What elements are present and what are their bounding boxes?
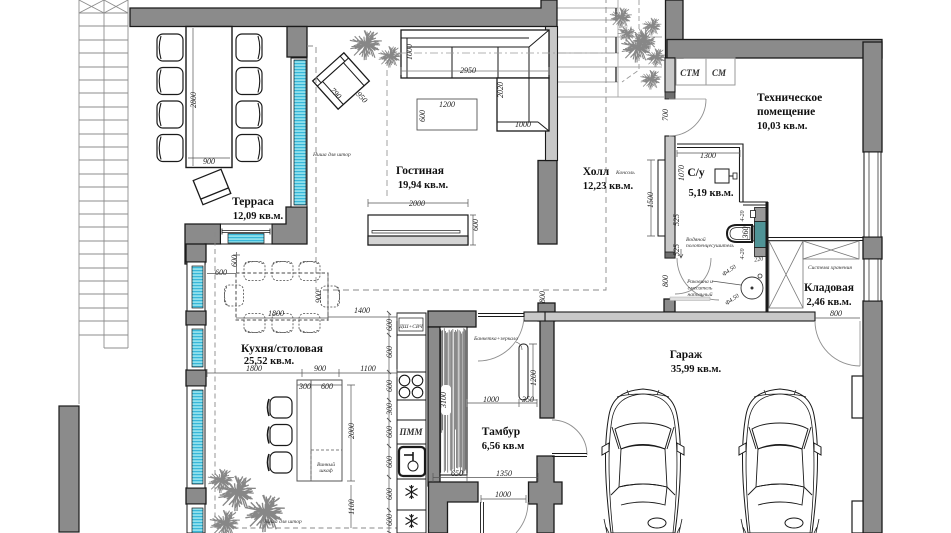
svg-text:600: 600 [321,382,333,391]
svg-text:5,19 кв.м.: 5,19 кв.м. [688,188,733,199]
svg-text:600: 600 [418,110,427,122]
svg-text:напольный: напольный [688,291,713,298]
svg-text:Ниша для штор: Ниша для штор [263,518,302,525]
svg-text:600: 600 [385,380,394,392]
svg-text:Кухня/столовая: Кухня/столовая [241,343,323,355]
svg-text:1070: 1070 [677,165,686,181]
svg-text:Терраса: Терраса [232,196,274,208]
svg-text:220: 220 [754,256,764,263]
svg-text:Консоль: Консоль [615,170,635,176]
svg-text:12,23 кв.м.: 12,23 кв.м. [583,181,634,192]
svg-text:900: 900 [314,364,326,373]
svg-text:Раковина и: Раковина и [686,279,713,285]
svg-text:Банкетка+зеркало: Банкетка+зеркало [473,336,518,342]
svg-text:300: 300 [298,382,311,391]
svg-text:Водяной: Водяной [686,236,706,243]
svg-text:700: 700 [661,109,670,121]
svg-text:600: 600 [385,514,394,526]
svg-text:1400: 1400 [354,306,370,315]
svg-text:2000: 2000 [409,199,425,208]
svg-text:3100: 3100 [439,392,448,409]
svg-text:600: 600 [230,255,239,267]
svg-text:шкаф: шкаф [319,467,332,474]
svg-text:ДШ+СВЧ: ДШ+СВЧ [398,324,424,330]
svg-text:СМ: СМ [712,68,727,78]
svg-text:1350: 1350 [496,469,512,478]
svg-text:800: 800 [538,291,547,303]
svg-text:600: 600 [385,456,394,468]
svg-text:10,03 кв.м.: 10,03 кв.м. [757,121,808,132]
svg-text:19,94 кв.м.: 19,94 кв.м. [398,180,449,191]
svg-text:2000: 2000 [347,423,356,439]
svg-text:600: 600 [215,268,227,277]
svg-text:СТМ: СТМ [680,68,701,78]
svg-text:360: 360 [741,227,750,240]
svg-text:525: 525 [672,214,681,226]
svg-text:Тамбур: Тамбур [482,426,520,438]
svg-text:900: 900 [203,157,215,166]
svg-text:Гостиная: Гостиная [396,165,444,177]
svg-text:4-20: 4-20 [739,211,746,222]
svg-text:900: 900 [314,291,323,303]
svg-text:1100: 1100 [347,499,356,514]
svg-text:1200: 1200 [529,370,538,386]
svg-text:Винный: Винный [317,461,335,468]
svg-text:600: 600 [385,319,394,331]
svg-text:Техническое: Техническое [757,92,822,104]
svg-text:помещение: помещение [757,106,815,118]
svg-text:1000: 1000 [515,120,531,129]
svg-text:600: 600 [385,426,394,438]
svg-text:смеситель: смеситель [688,286,713,292]
svg-text:Система хранения: Система хранения [808,265,852,271]
svg-text:полотенцесушитель: полотенцесушитель [686,243,734,249]
svg-text:600: 600 [385,346,394,358]
svg-text:2020: 2020 [496,82,505,98]
svg-text:4-20: 4-20 [739,249,746,260]
svg-text:800: 800 [830,309,842,318]
svg-text:2950: 2950 [460,66,476,75]
svg-text:1500: 1500 [646,192,655,208]
svg-text:Гараж: Гараж [670,349,703,361]
svg-text:Кладовая: Кладовая [804,282,854,294]
svg-text:2,46 кв.м.: 2,46 кв.м. [806,297,851,308]
svg-text:С/у: С/у [687,167,705,179]
svg-text:525: 525 [672,244,681,256]
svg-text:1100: 1100 [360,364,375,373]
svg-text:1300: 1300 [700,151,716,160]
svg-text:35,99 кв.м.: 35,99 кв.м. [671,364,722,375]
svg-text:6,56 кв.м: 6,56 кв.м [482,441,525,452]
svg-text:ПММ: ПММ [398,427,423,437]
svg-text:1800: 1800 [268,309,284,318]
svg-text:Ниша для штор: Ниша для штор [312,151,351,158]
svg-text:600: 600 [471,219,480,231]
svg-text:650: 650 [451,469,463,478]
svg-text:1000: 1000 [405,44,414,60]
svg-text:800: 800 [661,275,670,287]
svg-text:1000: 1000 [495,490,511,499]
svg-text:Холл: Холл [583,166,610,178]
svg-text:1200: 1200 [439,100,455,109]
svg-text:1800: 1800 [246,364,262,373]
svg-text:600: 600 [385,488,394,500]
svg-text:12,09 кв.м.: 12,09 кв.м. [233,211,284,222]
svg-text:2800: 2800 [189,92,198,108]
svg-text:300: 300 [385,403,394,416]
